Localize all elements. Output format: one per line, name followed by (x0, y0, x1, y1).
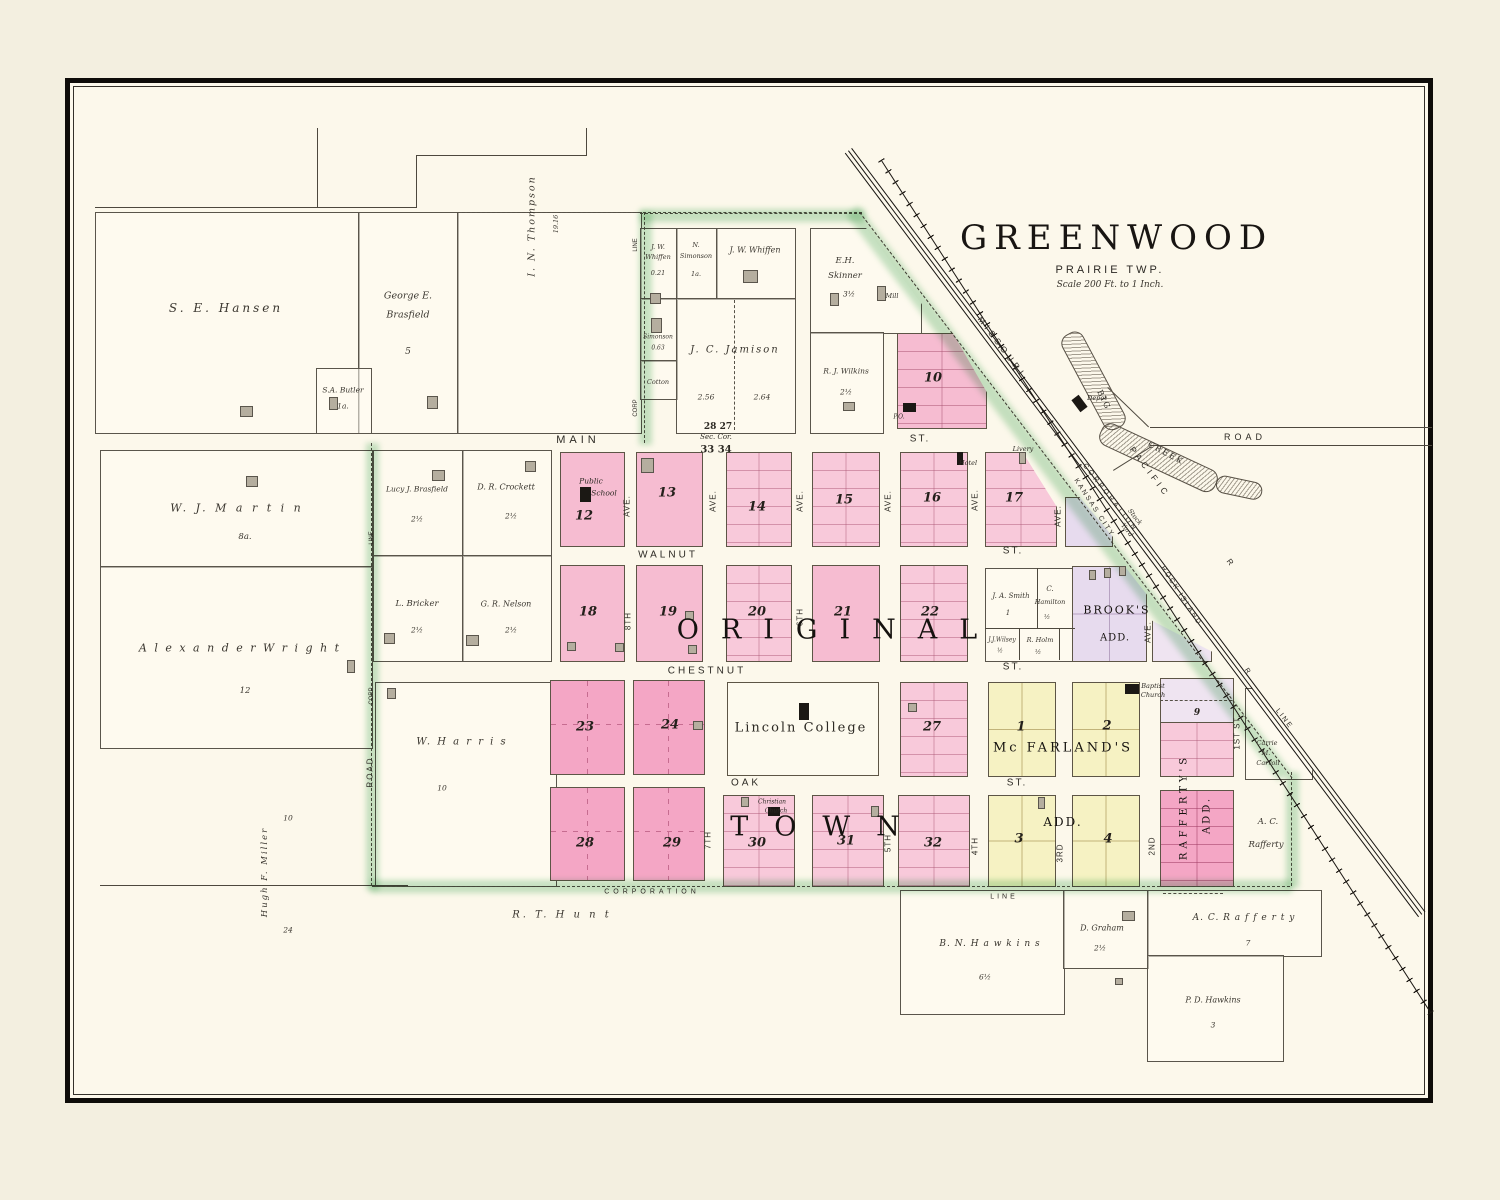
addition-label: BROOK'S (1083, 604, 1150, 617)
parcel-label-b-n-hawkins: 6½ (979, 973, 991, 982)
parcel-label-b-n-hawkins: B. N. H a w k i n s (939, 939, 1040, 949)
feature-label: P.O. (893, 414, 904, 421)
parcel-label-george-e-brasfield: George E. (384, 291, 432, 302)
feature-label: CORP (369, 687, 375, 704)
parcel-label-j-c-jamison: 2.56 (698, 393, 715, 402)
parcel-j-w-whiffen-2 (716, 228, 796, 300)
parcel-label-a-c-rafferty-north: Rafferty (1249, 840, 1284, 850)
feature-label: 33 34 (700, 445, 731, 456)
parcel-n-simonson (676, 228, 718, 300)
building-icon (1038, 797, 1045, 809)
map-subtitle: PRAIRIE TWP. (960, 264, 1260, 276)
block-29 (633, 787, 705, 881)
street-label-st-: ST. (1003, 662, 1023, 673)
parcel-label-e-h-skinner: 3½ (843, 290, 855, 299)
boundary-line (1059, 628, 1060, 660)
feature-label: LINE (369, 531, 375, 544)
parcel-i-n-thompson (457, 212, 642, 434)
street-label-st-: ST. (1007, 778, 1027, 789)
parcel-label-george-e-brasfield: Brasfield (386, 310, 429, 321)
street-label-1st-st-: 1ST ST. (1233, 714, 1242, 749)
parcel-p-d-hawkins (1147, 955, 1284, 1062)
block-number-29: 29 (663, 836, 681, 851)
building-icon (830, 293, 839, 306)
block-number-10: 10 (924, 371, 942, 386)
parcel-label-d-r-crockett: 2½ (505, 512, 517, 521)
street-label-ave-: AVE. (1054, 505, 1063, 527)
parcel-label-n-simonson: 1a. (691, 270, 701, 278)
building-icon (387, 688, 396, 699)
parcel-label-e-h-skinner: Skinner (828, 271, 862, 281)
feature-label: 28 27 (704, 422, 732, 432)
feature-label: Baptist (1141, 682, 1164, 690)
map-scale: Scale 200 Ft. to 1 Inch. (960, 280, 1260, 290)
parcel-label-lucy-j-brasfield: 2½ (411, 515, 423, 524)
parcel-label-hugh-f-miller: 24 (283, 926, 293, 935)
building-icon (843, 402, 855, 411)
feature-label: LINE (990, 894, 1018, 901)
parcel-label-alexander-wright: A l e x a n d e r W r i g h t (139, 642, 341, 655)
street-label-oak: OAK (731, 778, 761, 789)
addition-label: ORIGINAL (677, 615, 999, 646)
boundary-line (1019, 628, 1020, 660)
street-label-st-: ST. (1003, 546, 1023, 557)
parcel-label-smith-hamilton-wilsey-holm: 1 (1006, 609, 1010, 617)
block-number-19: 19 (659, 605, 677, 620)
parcel-label-j-c-jamison: 2.64 (754, 393, 771, 402)
boundary-line (95, 207, 417, 208)
block-unnumbered (1160, 722, 1234, 777)
parcel-label-j-c-jamison: J. C. Jamison (690, 345, 780, 356)
parcel-a-c-rafferty-south (1147, 890, 1322, 957)
parcel-label-george-e-brasfield: 5 (405, 347, 411, 357)
parcel-label-w-harris: 10 (437, 784, 447, 793)
building-icon (615, 643, 624, 652)
block-12 (560, 452, 625, 547)
livery-building (1019, 452, 1026, 464)
block-number-4: 4 (1103, 832, 1112, 847)
parcel-label-lucy-j-brasfield: Lucy J. Brasfield (386, 485, 448, 494)
title-block: GREENWOOD PRAIRIE TWP. Scale 200 Ft. to … (960, 218, 1260, 290)
street-label-ave-: AVE. (884, 490, 893, 512)
parcel-r-j-wilkins (810, 332, 884, 434)
parcel-w-harris (375, 682, 557, 887)
lincoln-college-building (799, 703, 809, 720)
boundary-line (1163, 893, 1223, 894)
building-icon (743, 270, 758, 283)
feature-label: CORP (633, 399, 639, 416)
block-number-12: 12 (575, 509, 593, 524)
building-icon (693, 721, 703, 730)
building-icon (1104, 568, 1111, 578)
parcel-label-r-j-wilkins: 2½ (840, 388, 852, 397)
parcel-label-n-simonson: Simonson (680, 252, 712, 260)
boundary-line (100, 885, 408, 886)
boundary-line (734, 300, 735, 430)
parcel-label-smith-hamilton-wilsey-holm: ½ (1035, 648, 1041, 656)
parcel-label-p-d-hawkins: P. D. Hawkins (1185, 996, 1240, 1005)
building-icon (347, 660, 355, 673)
block-number-16: 16 (923, 491, 941, 506)
parcel-label-w-harris: W. H a r r i s (416, 737, 507, 748)
parcel-label-a-c-rafferty-south: A. C. R a f f e r t y (1193, 913, 1296, 923)
building-icon (1119, 566, 1126, 576)
parcel-label-d-graham: D. Graham (1080, 924, 1124, 933)
street-label-4th: 4TH (971, 837, 980, 855)
building-icon (651, 318, 662, 333)
street-label-chestnut: CHESTNUT (668, 666, 746, 677)
parcel-j-c-jamison (676, 298, 796, 434)
parcel-label-carrie-m-carroll: M. (1262, 749, 1271, 757)
street-label-road: ROAD (366, 756, 375, 787)
parcel-label-smith-hamilton-wilsey-holm: Hamilton (1035, 598, 1066, 606)
parcel-label-j-w-whiffen-1: Whiffen (645, 253, 671, 261)
street-label-road: ROAD (1224, 432, 1266, 442)
parcel-label-i-n-thompson: I. N. Thompson (527, 175, 538, 277)
parcel-label-smith-hamilton-wilsey-holm: R. Holm (1027, 636, 1054, 644)
block-number-3: 3 (1014, 832, 1023, 847)
street-label-ave-: AVE. (796, 490, 805, 512)
building-icon (1122, 911, 1135, 921)
street-label-8th: 8TH (624, 612, 633, 630)
block-number-18: 18 (579, 605, 597, 620)
building-icon (567, 642, 576, 651)
parcel-label-d-r-crockett: D. R. Crockett (477, 483, 535, 492)
block-unnumbered (1160, 790, 1234, 887)
feature-label: Mill (886, 292, 899, 300)
corporation-line-band (366, 443, 379, 890)
plat-map-page: S. E. HansenGeorge E.Brasfield5S.A. Butl… (0, 0, 1500, 1200)
parcel-label-smith-hamilton-wilsey-holm: ½ (997, 648, 1003, 655)
parcel-george-e-brasfield (358, 212, 459, 434)
building-icon (240, 406, 253, 417)
post-office-building (903, 403, 916, 412)
building-icon (427, 396, 438, 409)
addition-label: ADD. (1202, 796, 1213, 834)
boundary-line (417, 155, 587, 156)
building-icon (908, 703, 917, 712)
parcel-label-a-c-rafferty-north: A. C. (1258, 817, 1278, 827)
parcel-label-smith-hamilton-wilsey-holm: C. (1046, 585, 1053, 593)
building-icon (432, 470, 445, 481)
building-icon (641, 458, 654, 473)
boundary-line (1150, 427, 1432, 428)
parcel-label-simonson: 0.63 (651, 345, 664, 352)
parcel-label-smith-hamilton-wilsey-holm: ½ (1044, 613, 1050, 621)
parcel-label-e-h-skinner: E.H. (835, 256, 854, 266)
block-number-32: 32 (924, 836, 942, 851)
corporation-line-band (640, 209, 865, 222)
parcel-label-w-j-martin: W. J. M a r t i n (170, 502, 304, 515)
feature-label: School (591, 489, 617, 498)
street-label-2nd: 2ND (1148, 836, 1157, 855)
parcel-label-j-w-whiffen-1: 0.21 (651, 269, 665, 277)
block-number-13: 13 (658, 486, 676, 501)
building-icon (650, 293, 661, 304)
parcel-label-a-c-rafferty-south: 7 (1246, 939, 1251, 948)
parcel-label-g-r-nelson: 2½ (505, 626, 517, 635)
parcel-alexander-wright (100, 566, 373, 749)
addition-label: Mc FARLAND'S (993, 741, 1133, 756)
parcel-label-r-t-hunt: R. T. H u n t (512, 910, 612, 921)
addition-label: ADD. (1100, 633, 1130, 644)
street-label-ave-: AVE. (1144, 621, 1153, 643)
parcel-label-s-e-hansen: S. E. Hansen (169, 301, 283, 315)
block-number-2: 2 (1102, 719, 1111, 734)
parcel-label-carrie-m-carroll: Carrie (1257, 739, 1278, 747)
street-label-ave-: AVE. (971, 489, 980, 511)
parcel-label-d-graham: 2½ (1094, 944, 1106, 953)
feature-label: Sec. Cor. (700, 433, 732, 441)
parcel-label-g-r-nelson: G. R. Nelson (481, 600, 532, 609)
parcel-label-j-w-whiffen-1: J. W. (651, 243, 665, 251)
block-number-9: 9 (1194, 708, 1200, 718)
feature-label: Lincoln College (735, 721, 868, 736)
building-icon (741, 797, 749, 807)
boundary-line (317, 128, 318, 207)
parcel-label-smith-hamilton-wilsey-holm: J. A. Smith (992, 592, 1029, 600)
parcel-lucy-j-brasfield (373, 450, 464, 557)
street-label-st-: ST. (910, 434, 930, 445)
addition-label: RAFFERTY'S (1179, 754, 1190, 860)
addition-label: ADD. (1043, 815, 1082, 829)
street-label-ave-: AVE. (623, 495, 632, 517)
block-number-15: 15 (835, 493, 853, 508)
addition-label: TOWN (730, 812, 926, 843)
block-number-23: 23 (576, 720, 594, 735)
parcel-label-r-j-wilkins: R. J. Wilkins (823, 367, 869, 376)
boundary-line (416, 155, 417, 207)
corporation-line-band (370, 880, 1292, 893)
block-28 (550, 787, 625, 881)
parcel-label-p-d-hawkins: 3 (1211, 1021, 1216, 1030)
parcel-label-carrie-m-carroll: Carroll (1256, 759, 1279, 767)
building-icon (525, 461, 536, 472)
parcel-label-hugh-f-miller: Hugh F. Miller (260, 827, 270, 917)
feature-label: Christian (758, 799, 786, 806)
parcel-label-s-a-butler: S.A. Butler (322, 386, 363, 395)
street-label-main: MAIN (556, 434, 600, 446)
parcel-label-i-n-thompson: 19.16 (552, 215, 560, 234)
public-school-building (580, 487, 591, 502)
parcel-label-alexander-wright: 12 (240, 686, 251, 696)
street-label-7th: 7TH (704, 831, 713, 849)
building-icon (466, 635, 479, 646)
parcel-label-hugh-f-miller: 10 (283, 814, 293, 823)
parcel-label-n-simonson: N. (692, 241, 699, 249)
parcel-d-r-crockett (462, 450, 552, 557)
parcel-b-n-hawkins (900, 890, 1065, 1015)
parcel-label-l-bricker: L. Bricker (395, 599, 438, 609)
building-icon (688, 645, 697, 654)
feature-label: Church (765, 808, 787, 815)
baptist-church-building (1125, 684, 1139, 694)
feature-label: LINE (633, 238, 639, 251)
block-number-27: 27 (923, 720, 941, 735)
street-label-3rd: 3RD (1056, 843, 1065, 862)
parcel-label-j-w-whiffen-2: J. W. Whiffen (729, 246, 780, 255)
feature-label: CORPORATION (604, 889, 700, 896)
building-icon (246, 476, 258, 487)
building-icon (1089, 570, 1096, 580)
street-label-ave-: AVE. (709, 490, 718, 512)
map-title: GREENWOOD (960, 218, 1260, 258)
feature-label: Public (579, 477, 603, 486)
block-number-14: 14 (748, 500, 766, 515)
block-number-28: 28 (576, 836, 594, 851)
parcel-label-s-a-butler: 1a. (337, 402, 349, 411)
block-number-24: 24 (661, 718, 679, 733)
block-number-1: 1 (1016, 720, 1025, 735)
building-icon (384, 633, 395, 644)
parcel-label-cotton: Cotton (647, 378, 669, 386)
parcel-label-simonson: Simonson (643, 334, 673, 341)
parcel-label-l-bricker: 2½ (411, 626, 423, 635)
feature-label: Church (1141, 691, 1165, 699)
parcel-label-w-j-martin: 8a. (238, 532, 251, 542)
boundary-line (586, 128, 587, 155)
block-number-17: 17 (1005, 491, 1023, 506)
building-icon (1115, 978, 1123, 985)
boundary-line (1150, 445, 1432, 446)
feature-label: Livery (1013, 445, 1034, 453)
street-label-walnut: WALNUT (638, 550, 698, 561)
feature-label: Hotel (959, 459, 977, 467)
